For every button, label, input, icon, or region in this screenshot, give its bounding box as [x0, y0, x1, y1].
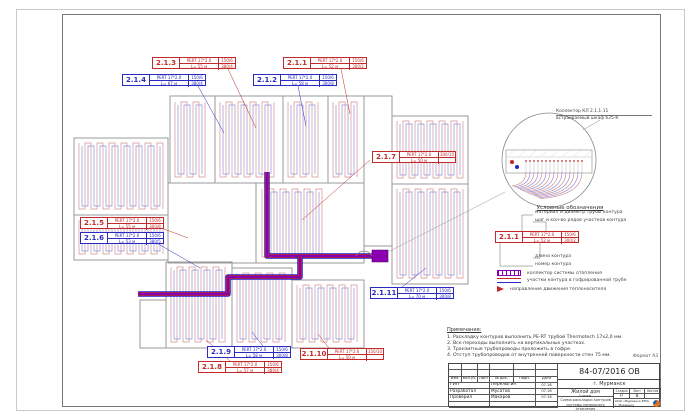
stamp-cell	[490, 402, 536, 408]
legend-pointer-pipe: материал и диаметр трубы контура	[535, 210, 623, 215]
sheet-title-line2: Схема раскладки контуров системы напольн…	[558, 398, 613, 410]
loop-length: L= 52 м	[523, 238, 561, 244]
circuit-number: 2.1.8	[198, 361, 226, 373]
circuit-data-table: PERT 17*2.0150/10L= 50 м	[328, 348, 384, 360]
legend-item-label: участки контура в гофрированной трубе	[527, 278, 627, 283]
circuit-number: 2.1.1	[495, 231, 523, 243]
circuit-data-table: PERT 17*2.0150/6L= 52 м300/2	[523, 231, 579, 243]
loop-extra: 380/4	[218, 64, 235, 70]
loop-length: L= 57 м	[226, 368, 264, 374]
loop-length: L= 70 м	[398, 294, 436, 300]
city-label: г. Мурманск	[558, 380, 661, 389]
stage-sheet-grid: Стадия Лист Листов Р 8	[614, 389, 661, 399]
circuit-number: 2.1.7	[372, 151, 400, 163]
loop-extra: 380/4	[264, 368, 281, 374]
company-block: ООО «Мурманск-РТИ» г. Мурманск	[614, 399, 661, 408]
circuit-tag-2.1.1: 2.1.1PERT 17*2.0150/6L= 52 м300/2	[283, 57, 367, 69]
legend-item: коллектор системы отопления	[497, 270, 602, 276]
circuit-tag-2.1.10: 2.1.10PERT 17*2.0150/10L= 50 м	[300, 348, 384, 360]
circuit-data-table: PERT 17*2.0150/6L= 58 м300/8	[281, 74, 337, 86]
document-number: 84-07/2016 ОВ	[558, 364, 661, 380]
loop-extra: 300/8	[146, 224, 163, 230]
circuit-number: 2.1.2	[253, 74, 281, 86]
loop-length: L= 50 м	[400, 158, 438, 164]
legend-pointer-length: длина контура	[535, 254, 571, 259]
format-note: Формат А3	[598, 354, 658, 359]
sheet-title: 2 этаж. Схема раскладки контуров системы…	[558, 397, 614, 408]
circuit-tag-2.1.3: 2.1.3PERT 17*2.0150/6L= 55 м380/4	[152, 57, 236, 69]
circuit-tag-2.1.9: 2.1.9PERT 17*2.0150/6L= 58 м300/8	[207, 346, 291, 358]
plan-collector-symbol	[372, 250, 388, 262]
circuit-data-table: PERT 17*2.0150/6L= 57 м380/4	[226, 361, 282, 373]
collector-callout: Коллектор КЛ 2.1.1-11 встраиваемый шкаф …	[556, 109, 652, 121]
circuit-data-table: PERT 17*2.0300/10L= 50 м	[400, 151, 456, 163]
legend-pointer-number: номер контура	[535, 262, 571, 267]
loop-length: L= 53 м	[108, 239, 146, 245]
circuit-data-table: PERT 17*2.0150/6L= 55 м380/4	[180, 57, 236, 69]
loop-extra: 300/8	[273, 353, 290, 359]
circuit-number: 2.1.6	[80, 232, 108, 244]
loop-length: L= 67 м	[150, 81, 188, 87]
circuit-number: 2.1.3	[152, 57, 180, 69]
circuit-number: 2.1.5	[80, 217, 108, 229]
circuit-tag-2.1.6: 2.1.6PERT 17*2.0150/6L= 53 м380/5	[80, 232, 164, 244]
circuit-number: 2.1.10	[300, 348, 328, 360]
loop-extra: 300/2	[349, 64, 366, 70]
notes-title: Примечания:	[447, 327, 662, 333]
legend-item: участки контура в гофрированной трубе	[497, 278, 627, 283]
loop-length: L= 55 м	[108, 224, 146, 230]
circuit-data-table: PERT 17*2.0150/6L= 55 м300/8	[108, 217, 164, 229]
circuit-tag-2.1.8: 2.1.8PERT 17*2.0150/6L= 57 м380/4	[198, 361, 282, 373]
circuit-tag-2.1.7: 2.1.7PERT 17*2.0300/10L= 50 м	[372, 151, 456, 163]
trunk-pipes-group	[138, 172, 388, 294]
drawing-page: 2.1.1PERT 17*2.0150/6L= 52 м300/22.1.2PE…	[0, 0, 700, 420]
company-logo-icon	[653, 400, 660, 407]
loop-length: L= 58 м	[235, 353, 273, 359]
loop-length: L= 58 м	[281, 81, 319, 87]
circuit-data-table: PERT 17*2.0150/6L= 58 м300/8	[235, 346, 291, 358]
loop-length: L= 52 м	[311, 64, 349, 70]
circuit-tag-2.1.5: 2.1.5PERT 17*2.0150/6L= 55 м300/8	[80, 217, 164, 229]
title-block: Изм.Кол.уч.Лист№ док.Подп.ДатаГИППерелыг…	[448, 363, 660, 407]
circuit-number: 2.1.4	[122, 74, 150, 86]
loop-extra	[438, 158, 455, 164]
loop-length: L= 55 м	[180, 64, 218, 70]
loop-extra: 380/5	[146, 239, 163, 245]
circuit-number: 2.1.1	[283, 57, 311, 69]
circuit-tag-2.1.1: 2.1.1PERT 17*2.0150/6L= 52 м300/2	[495, 231, 579, 243]
title-block-signature-grid: Изм.Кол.уч.Лист№ док.Подп.ДатаГИППерелыг…	[449, 364, 558, 408]
loop-extra	[366, 355, 383, 361]
company-text: ООО «Мурманск-РТИ» г. Мурманск	[615, 400, 651, 407]
flow-direction-arrow	[497, 286, 504, 292]
legend-item-label: направление движения теплоносителя	[510, 287, 606, 292]
company-line2: г. Мурманск	[615, 404, 651, 407]
circuit-data-table: PERT 17*2.0150/6L= 53 м380/5	[108, 232, 164, 244]
stamp-cell	[449, 402, 490, 408]
circuit-number: 2.1.11	[370, 287, 398, 299]
loop-extra: 380/4	[188, 81, 205, 87]
legend-item-label: коллектор системы отопления	[527, 271, 602, 276]
circuit-data-table: PERT 17*2.0150/6L= 67 м380/4	[150, 74, 206, 86]
loop-extra: 300/2	[561, 238, 578, 244]
corrugated-pipe-symbol	[497, 278, 521, 283]
loop-length: L= 50 м	[328, 355, 366, 361]
circuit-data-table: PERT 17*2.0150/6L= 70 м300/8	[398, 287, 454, 299]
circuit-number: 2.1.9	[207, 346, 235, 358]
loop-extra: 300/8	[319, 81, 336, 87]
circuit-tag-2.1.11: 2.1.11PERT 17*2.0150/6L= 70 м300/8	[370, 287, 454, 299]
collector-symbol	[497, 270, 521, 276]
circuit-tag-2.1.2: 2.1.2PERT 17*2.0150/6L= 58 м300/8	[253, 74, 337, 86]
loop-extra: 300/8	[436, 294, 453, 300]
legend-item: направление движения теплоносителя	[497, 286, 606, 292]
circuit-tag-2.1.4: 2.1.4PERT 17*2.0150/6L= 67 м380/4	[122, 74, 206, 86]
legend-pointer-step: шаг и кол-во рядов участков контура	[535, 218, 626, 223]
circuit-data-table: PERT 17*2.0150/6L= 52 м300/2	[311, 57, 367, 69]
collector-callout-line2: встраиваемый шкаф 625-К	[556, 116, 652, 121]
stamp-cell	[536, 402, 558, 408]
collector-callout-line1: Коллектор КЛ 2.1.1-11	[556, 109, 652, 116]
